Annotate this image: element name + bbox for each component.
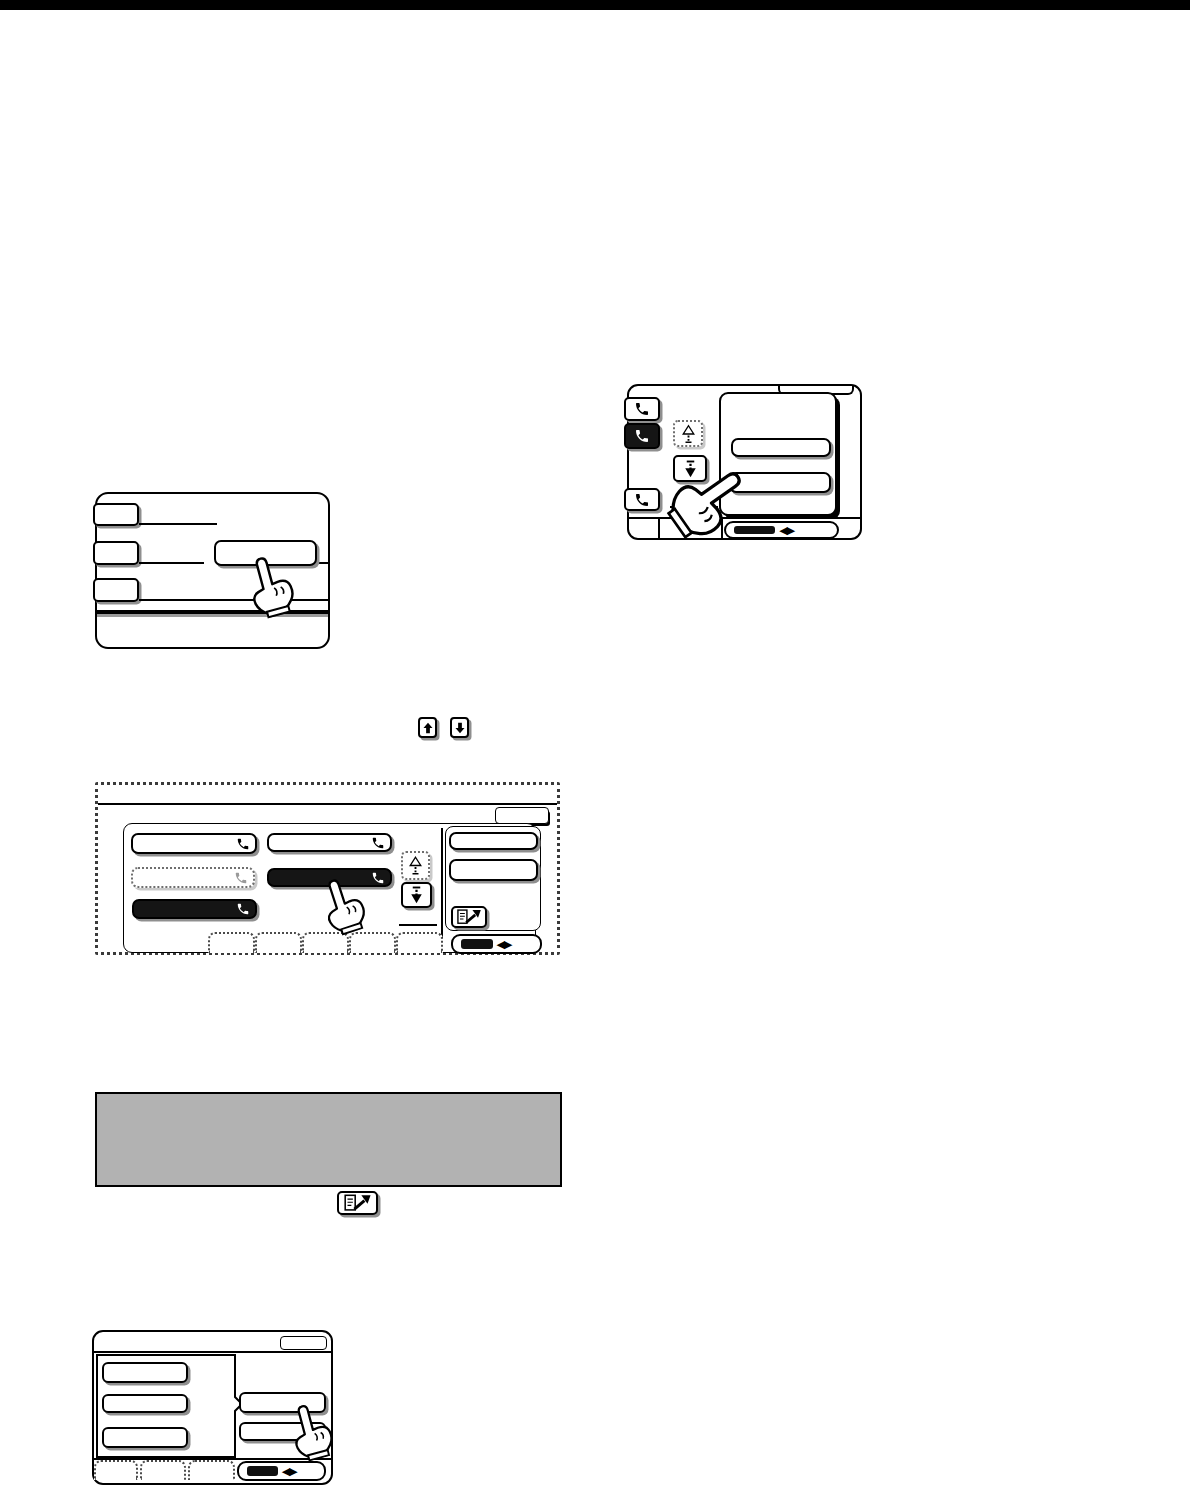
text-rule <box>318 562 330 564</box>
list-key <box>102 1362 188 1383</box>
figure-group-key-screen: ◀▶ <box>95 782 560 955</box>
exit-key <box>495 807 549 824</box>
phone-icon <box>634 428 650 444</box>
group-key-selected <box>132 899 257 919</box>
phone-icon <box>234 871 248 885</box>
screen-tab <box>188 1460 235 1480</box>
screen-tab <box>94 1460 138 1480</box>
scroll-up-key <box>673 420 703 447</box>
list-key <box>102 1427 188 1448</box>
phone-icon <box>634 492 650 508</box>
up-arrow-key-icon <box>422 722 434 734</box>
scroll-up-icon <box>681 424 696 444</box>
left-right-arrows-icon: ◀▶ <box>497 939 512 950</box>
pager-selected-block <box>247 1466 278 1476</box>
screen-tab <box>208 932 255 953</box>
screen-tab <box>255 932 302 953</box>
pager-key: ◀▶ <box>451 934 542 954</box>
scroll-down-icon <box>409 885 424 905</box>
bottom-bar-divider <box>658 519 660 539</box>
list-key <box>102 1394 188 1413</box>
phone-icon <box>371 836 385 850</box>
destination-key <box>731 438 831 457</box>
pressing-hand-icon <box>279 1399 338 1466</box>
right-function-box <box>445 826 541 931</box>
pager-key: ◀▶ <box>237 1461 326 1481</box>
figure-address-list-screen: ◀▶ <box>627 384 862 540</box>
group-key-dimmed <box>131 867 255 888</box>
inline-address-review-key <box>337 1191 378 1215</box>
phone-icon <box>236 902 250 916</box>
phone-icon <box>371 871 385 885</box>
screen-key <box>93 503 139 526</box>
document-arrow-icon <box>341 1193 374 1213</box>
figure-dial-select-screen: ◀▶ <box>92 1330 333 1485</box>
manual-page: ◀▶ <box>0 0 1190 1489</box>
left-right-arrows-icon: ◀▶ <box>779 525 794 536</box>
screen-tab <box>349 932 396 953</box>
bottom-bar-rule <box>629 517 860 519</box>
pager-selected-block <box>461 939 493 949</box>
exit-key <box>280 1336 327 1350</box>
function-key <box>449 832 538 850</box>
page-position-rule <box>399 924 437 926</box>
pager-selected-block <box>734 526 775 535</box>
screen-tab <box>140 1460 186 1480</box>
index-key-phone <box>624 488 660 511</box>
scroll-down-key <box>401 882 432 908</box>
index-key-phone <box>624 397 660 421</box>
header-rule <box>94 1351 331 1353</box>
inline-down-arrow-key <box>450 717 469 738</box>
header-rule <box>98 803 557 805</box>
pager-key: ◀▶ <box>724 521 839 539</box>
scroll-up-key <box>401 851 430 880</box>
text-rule <box>139 523 217 525</box>
group-key <box>267 833 392 852</box>
screen-key <box>93 578 139 602</box>
text-rule <box>139 562 204 564</box>
column-divider <box>441 828 443 949</box>
phone-icon <box>634 401 650 417</box>
down-arrow-key-icon <box>454 722 466 734</box>
function-key <box>449 859 538 881</box>
document-arrow-icon <box>454 908 484 926</box>
scroll-up-icon <box>408 855 423 876</box>
inline-up-arrow-key <box>418 717 437 738</box>
screen-tab <box>396 932 443 953</box>
index-key-phone-selected <box>624 423 660 449</box>
phone-icon <box>236 837 250 851</box>
page-top-rule <box>0 0 1190 10</box>
text-rule <box>139 599 329 601</box>
figure-condition-screen <box>95 492 330 649</box>
group-key <box>131 833 257 854</box>
note-box <box>95 1092 562 1187</box>
screen-key <box>93 541 139 565</box>
left-right-arrows-icon: ◀▶ <box>282 1466 297 1477</box>
address-review-key <box>451 906 487 928</box>
